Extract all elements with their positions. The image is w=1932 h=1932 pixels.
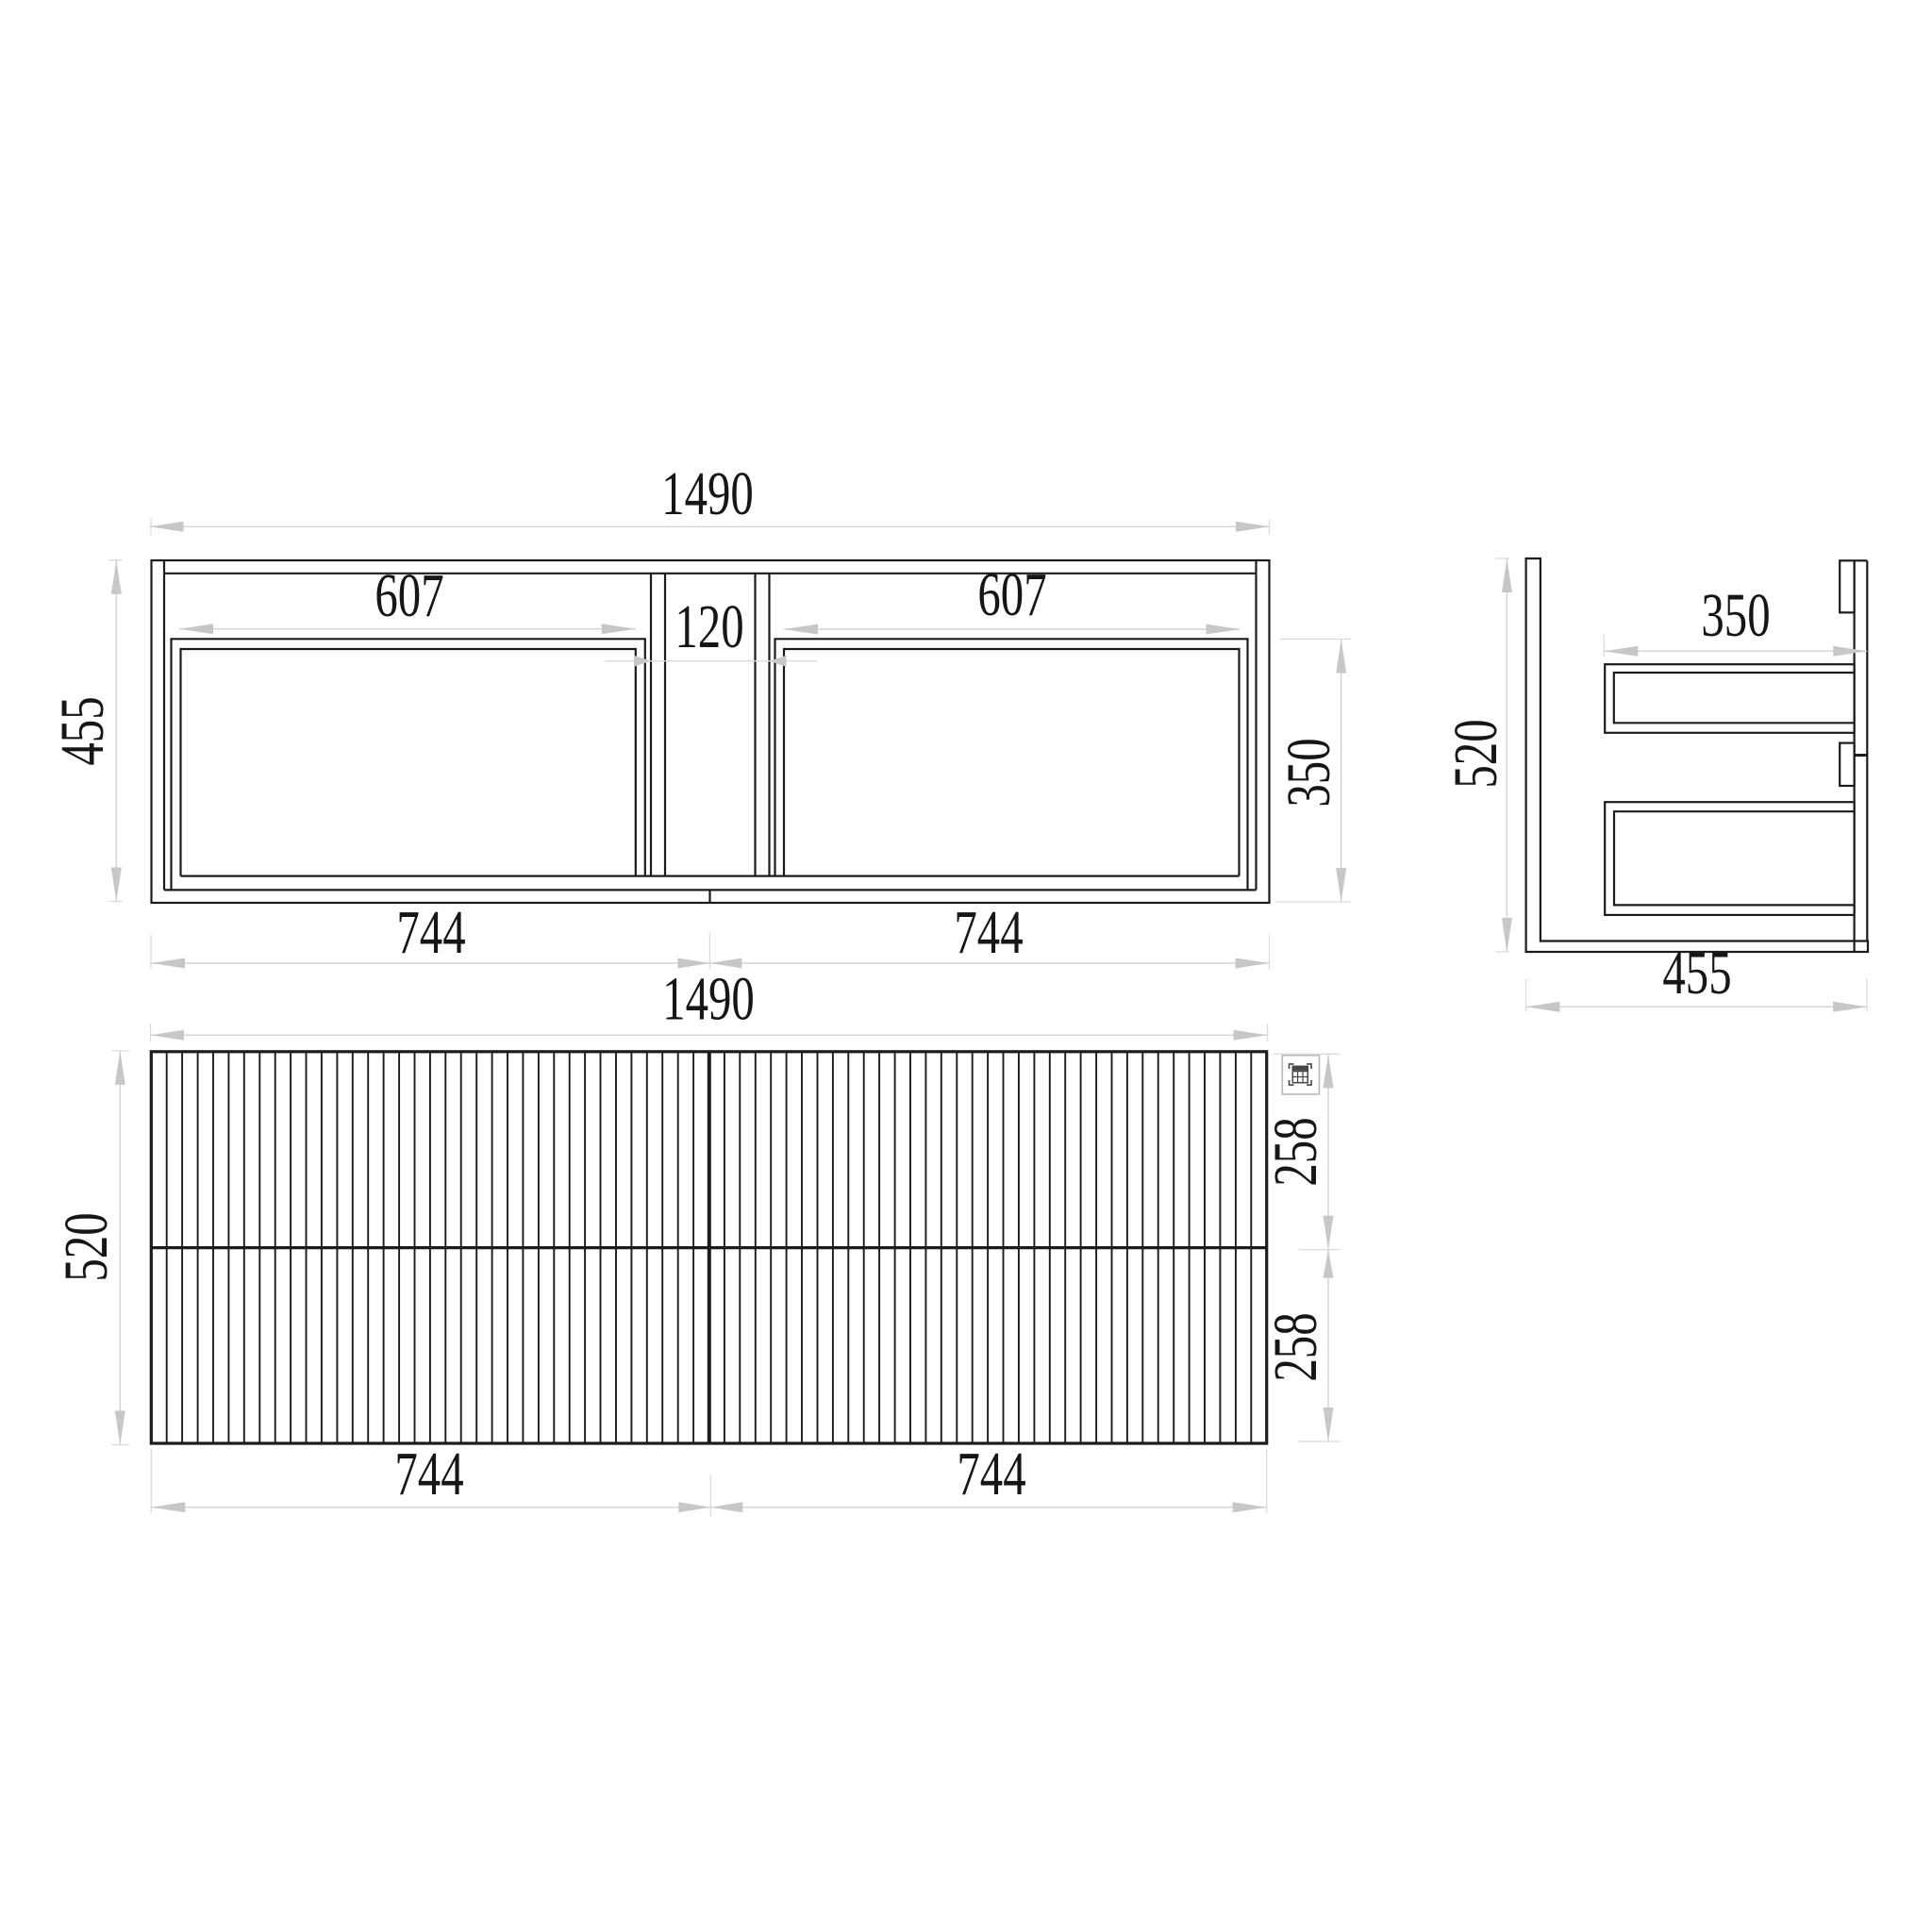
svg-text:744: 744 xyxy=(954,897,1023,967)
svg-text:455: 455 xyxy=(47,696,117,765)
svg-text:258: 258 xyxy=(1260,1117,1330,1186)
svg-text:744: 744 xyxy=(394,1439,463,1508)
svg-text:744: 744 xyxy=(957,1439,1025,1508)
svg-text:120: 120 xyxy=(675,591,743,661)
svg-text:744: 744 xyxy=(396,897,465,967)
svg-text:455: 455 xyxy=(1662,938,1731,1008)
svg-text:607: 607 xyxy=(977,559,1046,629)
svg-text:350: 350 xyxy=(1701,580,1770,650)
svg-text:607: 607 xyxy=(375,560,443,630)
svg-text:1490: 1490 xyxy=(662,963,755,1033)
svg-text:520: 520 xyxy=(1441,719,1510,788)
svg-text:258: 258 xyxy=(1260,1312,1330,1381)
svg-text:520: 520 xyxy=(51,1212,121,1281)
svg-text:1490: 1490 xyxy=(661,458,754,528)
svg-text:350: 350 xyxy=(1274,738,1343,807)
